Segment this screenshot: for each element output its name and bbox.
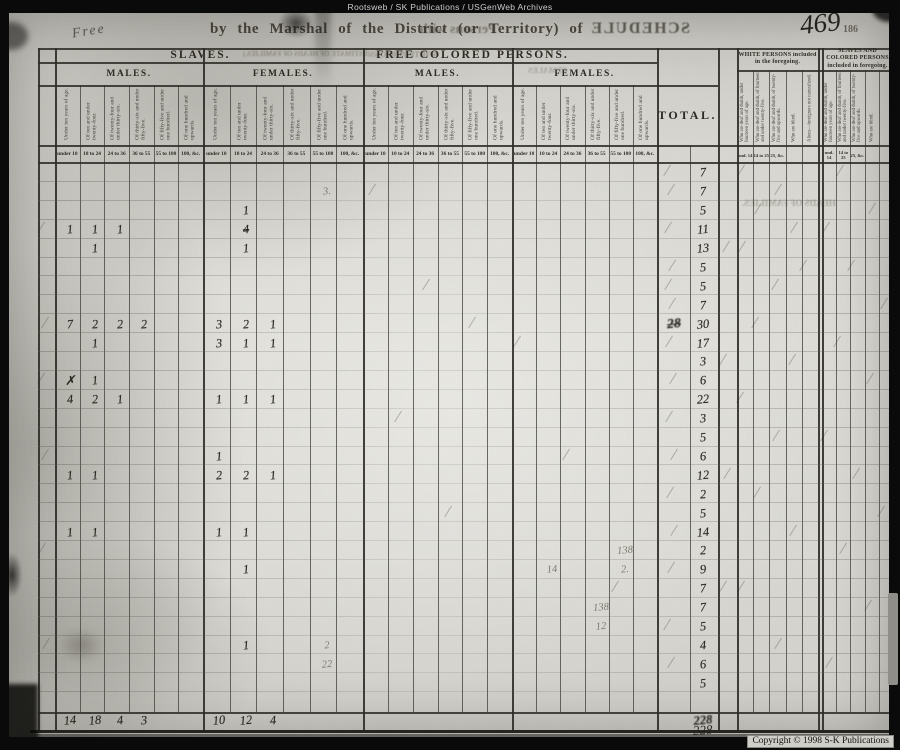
total-value: 12 bbox=[696, 468, 710, 484]
column-divider bbox=[230, 85, 231, 712]
total-value: 5 bbox=[699, 430, 707, 445]
total-value: 5 bbox=[699, 619, 707, 634]
column-divider bbox=[178, 85, 179, 712]
total-subdivider bbox=[690, 145, 691, 712]
row-line bbox=[38, 219, 893, 220]
row-line bbox=[38, 502, 893, 503]
age-column-short-label: 55 to 100 bbox=[310, 145, 337, 162]
column-total: 14 bbox=[63, 713, 77, 729]
cell-entry: 2 bbox=[116, 317, 124, 332]
row-line bbox=[38, 332, 893, 333]
column-divider bbox=[487, 85, 488, 712]
total-value: 14 bbox=[696, 524, 710, 540]
age-column-label: Of one hundred and upwards. bbox=[180, 87, 201, 143]
slave-females-header: FEMALES. bbox=[203, 62, 363, 85]
total-value: 5 bbox=[699, 260, 707, 275]
total-value: 11 bbox=[697, 222, 710, 238]
row-line bbox=[38, 294, 893, 295]
cell-entry: 1 bbox=[91, 525, 99, 540]
age-column-short-label: 10 to 24 bbox=[230, 145, 257, 162]
age-column-label: Of twenty-four and under thirty-six. bbox=[106, 87, 127, 143]
total-value: 3 bbox=[699, 354, 707, 369]
cell-entry: 1 bbox=[91, 336, 99, 351]
age-column-short-label: 55 to 100 bbox=[462, 145, 487, 162]
pencil-annotation: 12 bbox=[595, 621, 606, 633]
total-value: 6 bbox=[699, 657, 707, 672]
included-column-short-label: und. 14 bbox=[737, 148, 753, 162]
age-column-short-label: under 10 bbox=[512, 145, 536, 162]
age-column-label: Of fifty-five and under one hundred. bbox=[464, 87, 485, 143]
row-line bbox=[38, 408, 893, 409]
included-column-short-label bbox=[802, 148, 818, 162]
row-line bbox=[38, 483, 893, 484]
age-column-short-label: 100, &c. bbox=[178, 145, 203, 162]
row-line bbox=[38, 691, 893, 692]
total-value: 7 bbox=[699, 600, 707, 615]
row-line bbox=[38, 635, 893, 636]
cell-entry: 1 bbox=[242, 336, 250, 351]
cell-entry: 1 bbox=[242, 525, 250, 540]
age-column-short-label: 10 to 24 bbox=[80, 145, 105, 162]
cell-entry: 2 bbox=[91, 317, 99, 332]
age-column-short-label: 55 to 100 bbox=[154, 145, 179, 162]
total-value: 30 bbox=[696, 316, 710, 332]
pencil-annotation: 22 bbox=[321, 659, 332, 671]
column-divider bbox=[388, 85, 389, 712]
cell-entry: 1 bbox=[91, 222, 99, 237]
row-line bbox=[38, 464, 893, 465]
top-watermark-bar: Rootsweb / SK Publications / USGenWeb Ar… bbox=[0, 0, 900, 13]
age-column-label: Under ten years of age. bbox=[365, 87, 386, 143]
age-column-label: Of thirty-six and under fifty-five. bbox=[131, 87, 152, 143]
included-column-short-label: 25, &c. bbox=[769, 148, 785, 162]
slave-males-header: MALES. bbox=[55, 62, 203, 85]
age-column-label: Of thirty-six and under fifty-five. bbox=[587, 87, 607, 143]
included-column-label: Who are deaf and dumb, under fourteen ye… bbox=[823, 72, 835, 145]
column-divider bbox=[585, 85, 586, 712]
row-line bbox=[38, 616, 893, 617]
age-column-short-label: 36 to 55 bbox=[585, 145, 609, 162]
column-total: 18 bbox=[88, 713, 102, 729]
total-value: 17 bbox=[696, 335, 710, 351]
row-line bbox=[38, 389, 893, 390]
column-divider bbox=[413, 85, 414, 712]
cell-entry: 2 bbox=[242, 317, 250, 332]
row-line bbox=[38, 672, 893, 673]
column-divider bbox=[310, 85, 311, 712]
age-column-short-label: under 10 bbox=[203, 145, 230, 162]
cell-entry: 2 bbox=[242, 468, 250, 483]
age-column-label: Of fifty-five and under one hundred. bbox=[312, 87, 335, 143]
cell-entry: 1 bbox=[269, 336, 277, 351]
total-value: 7 bbox=[699, 298, 707, 313]
mirrored-schedule-title: SCHEDULE bbox=[590, 20, 690, 38]
column-divider bbox=[609, 85, 610, 712]
age-column-short-label: 100, &c. bbox=[336, 145, 363, 162]
cell-entry: 1 bbox=[91, 241, 99, 256]
row-line bbox=[38, 540, 893, 541]
total-value: 4 bbox=[699, 638, 707, 653]
total-value: 5 bbox=[699, 506, 707, 521]
pencil-annotation: 3. bbox=[323, 186, 332, 198]
row-line bbox=[38, 653, 893, 654]
cell-entry: 1 bbox=[269, 392, 277, 407]
included-column-short-label: 14 to 25 bbox=[836, 148, 850, 162]
total-value: 2 bbox=[699, 487, 707, 502]
total-value: 13 bbox=[696, 241, 710, 257]
total-value: 7 bbox=[699, 184, 707, 199]
row-line bbox=[38, 275, 893, 276]
cell-entry: ✗ bbox=[64, 373, 76, 390]
age-column-short-label: 36 to 55 bbox=[438, 145, 463, 162]
age-column-short-label: 10 to 24 bbox=[536, 145, 560, 162]
age-column-label: Of twenty-four and under thirty-six. bbox=[258, 87, 281, 143]
free-colored-section-title: FREE COLORED PERSONS. bbox=[363, 48, 657, 62]
age-column-short-label: under 10 bbox=[363, 145, 388, 162]
included-column-short-label: 25, &c. bbox=[850, 148, 864, 162]
cell-entry: 1 bbox=[91, 468, 99, 483]
row-line bbox=[38, 351, 893, 352]
printed-header-line: by the Marshal of the District (or Terri… bbox=[210, 21, 583, 38]
column-divider bbox=[336, 85, 337, 712]
age-column-label: Of fifty-five and under one hundred. bbox=[611, 87, 631, 143]
total-value: 6 bbox=[699, 373, 707, 388]
cell-entry: 4 bbox=[242, 222, 250, 237]
column-divider bbox=[438, 85, 439, 712]
included-column-short-label bbox=[786, 148, 802, 162]
row-line bbox=[38, 238, 893, 239]
total-value: 5 bbox=[699, 279, 707, 294]
column-total: 12 bbox=[239, 713, 253, 729]
included-column-short-label: 14 to 25 bbox=[753, 148, 769, 162]
total-column-header: TOTAL. bbox=[657, 85, 718, 145]
row-line bbox=[38, 181, 893, 182]
column-divider bbox=[256, 85, 257, 712]
included-column-label: Aliens—foreigners not naturalized. bbox=[803, 72, 817, 145]
cell-entry: 1 bbox=[116, 222, 124, 237]
page-edge-notch bbox=[888, 593, 898, 685]
age-column-label: Under ten years of age. bbox=[514, 87, 534, 143]
total-value: 9 bbox=[699, 562, 707, 577]
row-line bbox=[38, 578, 893, 579]
row-line bbox=[38, 370, 893, 371]
column-divider bbox=[462, 85, 463, 712]
included-column-label: Who are deaf and dumb, of twenty-five an… bbox=[770, 72, 784, 145]
copyright-notice: Copyright © 1998 S-K Publications bbox=[747, 735, 894, 748]
cell-entry: 1 bbox=[242, 638, 250, 653]
pencil-annotation: 138 bbox=[616, 545, 633, 557]
age-column-label: Under ten years of age. bbox=[205, 87, 228, 143]
age-column-short-label: 100, &c. bbox=[633, 145, 657, 162]
free-males-header: MALES. bbox=[363, 62, 512, 85]
age-column-short-label: 36 to 55 bbox=[283, 145, 310, 162]
row-line bbox=[38, 200, 893, 201]
cell-entry: 1 bbox=[242, 241, 250, 256]
column-divider bbox=[154, 85, 155, 712]
scanned-census-page: Rootsweb / SK Publications / USGenWeb Ar… bbox=[0, 0, 900, 750]
total-value: 5 bbox=[699, 203, 707, 218]
age-column-label: Of ten and under twenty-four. bbox=[390, 87, 411, 143]
age-column-label: Of twenty-four and under thirty-six. bbox=[415, 87, 436, 143]
age-column-label: Of thirty-six and under fifty-five. bbox=[440, 87, 461, 143]
cell-entry: 1 bbox=[242, 562, 250, 577]
age-column-short-label: 36 to 55 bbox=[129, 145, 154, 162]
age-column-label: Of fifty-five and under one hundred. bbox=[156, 87, 177, 143]
age-column-short-label: 24 to 36 bbox=[560, 145, 584, 162]
included-column-label: Who are deaf and dumb, of fourteen and u… bbox=[837, 72, 849, 145]
total-value: 2 bbox=[699, 543, 707, 558]
column-divider bbox=[80, 85, 81, 712]
row-line bbox=[38, 257, 893, 258]
row-line bbox=[38, 597, 893, 598]
included-column-short-label bbox=[865, 148, 879, 162]
included-column-label: Who are blind. bbox=[787, 72, 801, 145]
total-value: 3 bbox=[699, 411, 707, 426]
age-column-label: Of one hundred and upwards. bbox=[489, 87, 510, 143]
left-black-border bbox=[0, 0, 9, 750]
age-column-short-label: under 10 bbox=[55, 145, 80, 162]
age-column-label: Of ten and under twenty-four. bbox=[538, 87, 558, 143]
age-column-label: Of thirty-six and under fifty-five. bbox=[285, 87, 308, 143]
included-column-label: Who are deaf and dumb, under fourteen ye… bbox=[738, 72, 752, 145]
age-column-label: Of one hundred and upwards. bbox=[338, 87, 361, 143]
cell-entry: 1 bbox=[242, 392, 250, 407]
age-column-short-label: 24 to 36 bbox=[256, 145, 283, 162]
header-divider bbox=[38, 162, 893, 164]
cell-entry: 1 bbox=[116, 392, 124, 407]
column-divider bbox=[283, 85, 284, 712]
row-line bbox=[38, 559, 893, 560]
included-column-label: Who are deaf and dumb, of fourteen and u… bbox=[754, 72, 768, 145]
age-column-short-label: 10 to 24 bbox=[388, 145, 413, 162]
included-column-short-label: und. 14 bbox=[822, 148, 836, 162]
column-divider bbox=[560, 85, 561, 712]
column-divider bbox=[129, 85, 130, 712]
cell-entry: 2 bbox=[91, 392, 99, 407]
column-divider bbox=[104, 85, 105, 712]
age-column-label: Of ten and under twenty-four. bbox=[232, 87, 255, 143]
cell-entry: 1 bbox=[242, 203, 250, 218]
included-column-label: Who are deaf and dumb, of twenty-five an… bbox=[851, 72, 863, 145]
watermark-text: Rootsweb / SK Publications / USGenWeb Ar… bbox=[348, 2, 553, 12]
cell-entry: 1 bbox=[91, 373, 99, 388]
column-divider bbox=[633, 85, 634, 712]
slaves-section-title: SLAVES. bbox=[38, 48, 363, 62]
row-line bbox=[38, 313, 893, 314]
total-value: 7 bbox=[699, 581, 707, 596]
column-total: 4 bbox=[269, 713, 277, 728]
column-divider bbox=[536, 85, 537, 712]
colored-included-title: SLAVES AND COLORED PERSONS included in f… bbox=[822, 48, 893, 70]
crossed-out-total: 28 bbox=[666, 316, 681, 333]
printed-page-number: 186 bbox=[843, 24, 858, 35]
age-column-label: Of one hundred and upwards. bbox=[635, 87, 655, 143]
column-total: 4 bbox=[116, 713, 124, 728]
free-females-header: FEMALES. bbox=[512, 62, 657, 85]
age-column-short-label: 24 to 36 bbox=[104, 145, 129, 162]
pencil-annotation: 138 bbox=[592, 602, 609, 614]
age-column-short-label: 55 to 100 bbox=[609, 145, 633, 162]
total-value: 5 bbox=[699, 676, 707, 691]
pencil-annotation: 2 bbox=[324, 640, 330, 651]
cell-entry: 1 bbox=[269, 468, 277, 483]
column-total: 10 bbox=[212, 713, 226, 729]
total-value: 6 bbox=[699, 449, 707, 464]
age-column-short-label: 24 to 36 bbox=[413, 145, 438, 162]
age-column-label: Of ten and under twenty-four. bbox=[82, 87, 103, 143]
age-column-label: Under ten years of age. bbox=[57, 87, 78, 143]
total-value: 22 bbox=[696, 392, 710, 408]
row-line bbox=[38, 521, 893, 522]
totals-row-divider bbox=[38, 712, 893, 714]
table-bottom-border bbox=[30, 730, 893, 733]
white-included-title: WHITE PERSONS included in the foregoing. bbox=[737, 48, 818, 70]
row-line bbox=[38, 427, 893, 428]
pencil-annotation: 14 bbox=[547, 564, 558, 576]
age-column-label: Of twenty-four and under thirty-six. bbox=[562, 87, 582, 143]
pencil-annotation: 2. bbox=[620, 564, 629, 576]
cell-entry: 1 bbox=[269, 317, 277, 332]
row-line bbox=[38, 446, 893, 447]
included-column-label: Who are blind. bbox=[866, 72, 878, 145]
total-value: 7 bbox=[699, 165, 707, 180]
age-column-short-label: 100, &c. bbox=[487, 145, 512, 162]
